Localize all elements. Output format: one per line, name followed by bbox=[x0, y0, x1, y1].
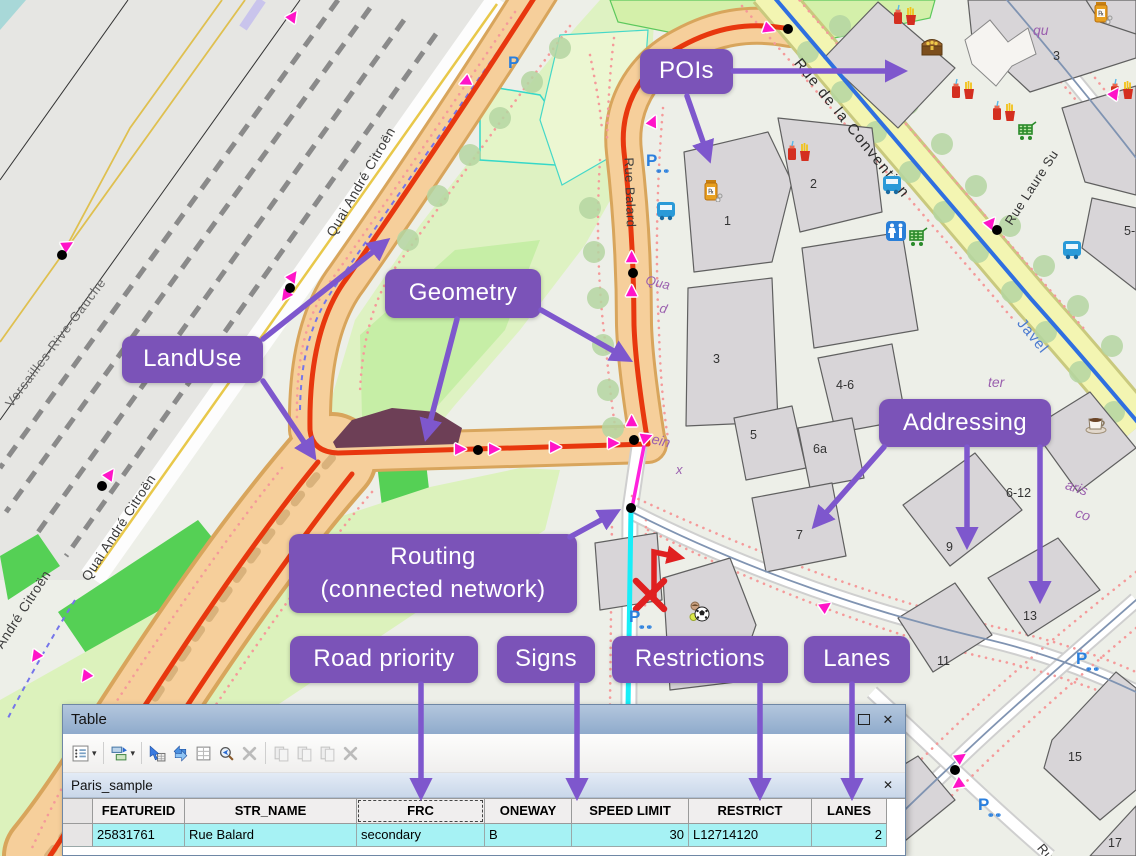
annotation-label-restrictions: Restrictions bbox=[612, 636, 788, 683]
tab-paris-sample[interactable]: Paris_sample bbox=[71, 778, 879, 793]
zoom-to-selected-icon[interactable] bbox=[216, 743, 237, 764]
annotation-text: Routing bbox=[390, 541, 476, 573]
related-tables-icon-dropdown-caret[interactable]: ▾ bbox=[131, 748, 136, 759]
attribute-grid: FEATUREIDSTR_NAMEFRCONEWAYSPEED LIMITRES… bbox=[63, 798, 905, 847]
annotation-text: Addressing bbox=[903, 407, 1027, 439]
switch-selection-icon[interactable] bbox=[170, 743, 191, 764]
clear-selection-icon[interactable] bbox=[193, 743, 214, 764]
cell-featureid[interactable]: 25831761 bbox=[93, 824, 185, 847]
annotation-label-geometry: Geometry bbox=[385, 269, 541, 318]
annotation-label-pois: POIs bbox=[640, 49, 733, 94]
cell-oneway[interactable]: B bbox=[485, 824, 572, 847]
column-header-restrict[interactable]: RESTRICT bbox=[689, 799, 812, 824]
annotation-text: Road priority bbox=[313, 643, 454, 675]
toolbar-separator bbox=[265, 742, 266, 764]
cell-speed-limit[interactable]: 30 bbox=[572, 824, 689, 847]
column-header-oneway[interactable]: ONEWAY bbox=[485, 799, 572, 824]
column-header-lanes[interactable]: LANES bbox=[812, 799, 887, 824]
copy-icon[interactable] bbox=[271, 743, 292, 764]
header-row: FEATUREIDSTR_NAMEFRCONEWAYSPEED LIMITRES… bbox=[63, 798, 905, 824]
annotation-label-lanes: Lanes bbox=[804, 636, 910, 683]
related-tables-icon[interactable] bbox=[109, 743, 130, 764]
close-window-button[interactable]: ✕ bbox=[879, 711, 897, 729]
select-by-attributes-icon[interactable] bbox=[147, 743, 168, 764]
annotation-label-routing: Routing(connected network) bbox=[289, 534, 577, 613]
delete-selected-icon[interactable] bbox=[239, 743, 260, 764]
annotation-text: Geometry bbox=[409, 277, 518, 309]
column-header-featureid[interactable]: FEATUREID bbox=[93, 799, 185, 824]
table-row[interactable]: 25831761Rue BalardsecondaryB30L127141202 bbox=[63, 824, 905, 847]
row-selector-header[interactable] bbox=[63, 799, 93, 824]
row-selector-cell[interactable] bbox=[63, 824, 93, 847]
paste-icon[interactable] bbox=[294, 743, 315, 764]
table-toolbar: ▾▾ bbox=[63, 734, 905, 773]
table-options-icon-dropdown-caret[interactable]: ▾ bbox=[92, 748, 97, 759]
column-header-str-name[interactable]: STR_NAME bbox=[185, 799, 357, 824]
attribute-table-window: Table ✕ ▾▾ Paris_sample ✕ FEATUREIDSTR_N… bbox=[62, 704, 906, 856]
annotation-label-addressing: Addressing bbox=[879, 399, 1051, 447]
cell-str-name[interactable]: Rue Balard bbox=[185, 824, 357, 847]
annotation-text: Signs bbox=[515, 643, 577, 675]
toolbar-separator bbox=[103, 742, 104, 764]
tab-close-icon[interactable]: ✕ bbox=[879, 778, 897, 792]
annotation-label-road-priority: Road priority bbox=[290, 636, 478, 683]
column-header-speed-limit[interactable]: SPEED LIMIT bbox=[572, 799, 689, 824]
annotation-text: Restrictions bbox=[635, 643, 765, 675]
map-viewport: Versailles-Rive-GaucheQuai André Citroën… bbox=[0, 0, 1136, 856]
table-tab-row: Paris_sample ✕ bbox=[63, 773, 905, 798]
table-window-titlebar[interactable]: Table ✕ bbox=[63, 705, 905, 734]
annotation-text: POIs bbox=[659, 55, 714, 87]
table-options-icon[interactable] bbox=[70, 743, 91, 764]
column-header-frc[interactable]: FRC bbox=[357, 799, 485, 824]
toolbar-separator bbox=[141, 742, 142, 764]
table-window-title: Table bbox=[71, 711, 849, 728]
annotation-label-landuse: LandUse bbox=[122, 336, 263, 383]
annotation-label-signs: Signs bbox=[497, 636, 595, 683]
cell-restrict[interactable]: L12714120 bbox=[689, 824, 812, 847]
restore-window-button[interactable] bbox=[855, 711, 873, 729]
annotation-text: LandUse bbox=[143, 343, 242, 375]
annotation-text: Lanes bbox=[823, 643, 890, 675]
zoom-to-icon[interactable] bbox=[317, 743, 338, 764]
annotation-text: (connected network) bbox=[320, 574, 545, 606]
delete-icon[interactable] bbox=[340, 743, 361, 764]
cell-lanes[interactable]: 2 bbox=[812, 824, 887, 847]
cell-frc[interactable]: secondary bbox=[357, 824, 485, 847]
restore-icon bbox=[858, 714, 870, 725]
